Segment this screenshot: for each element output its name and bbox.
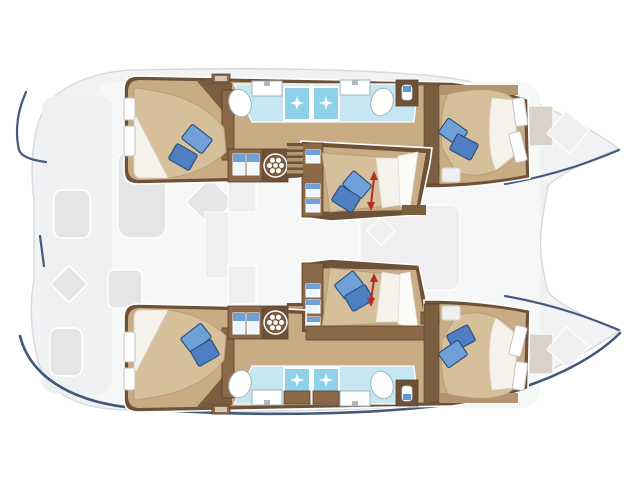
cockpit-bench-ghost (50, 328, 82, 376)
berth-steps (306, 284, 320, 330)
step-locker-top (306, 284, 320, 289)
floorplan-canvas (0, 0, 640, 480)
faucet (352, 80, 358, 85)
step-locker-top (306, 199, 320, 204)
bench (284, 391, 310, 404)
washer-icon (264, 311, 287, 334)
window-icon (124, 126, 135, 156)
washer-icon (264, 154, 287, 177)
catamaran-floorplan (0, 0, 640, 480)
cockpit-bench-ghost (54, 190, 90, 238)
step-locker-top (306, 300, 320, 305)
faucet (264, 81, 270, 86)
stairs-icon (287, 143, 303, 177)
window-icon (124, 368, 135, 390)
step-locker-top (306, 317, 320, 322)
faucet (264, 400, 270, 405)
locker-door-top (233, 154, 245, 162)
galley-counter-ghost (205, 212, 229, 278)
wardrobe (424, 304, 439, 402)
step-locker-top (306, 184, 320, 189)
locker-door-top (233, 313, 245, 321)
locker-door-top (247, 154, 259, 162)
window-icon (124, 98, 135, 120)
hatch-vent-inner (215, 407, 227, 412)
toilet-icon (402, 85, 412, 100)
hatch-vent-inner (215, 76, 227, 81)
seat (442, 168, 460, 182)
window-icon (124, 332, 135, 362)
seat (442, 306, 460, 320)
bathroom-port (225, 80, 418, 122)
bathroom-starboard (225, 366, 418, 406)
bow-hatch-ghost (527, 334, 553, 374)
bench (313, 391, 339, 404)
faucet (352, 401, 358, 406)
foot-step (402, 205, 426, 215)
locker-door-top (247, 313, 259, 321)
corridor-band (306, 326, 434, 340)
galley-unit-ghost (228, 266, 256, 304)
bow-hatch-ghost (527, 106, 553, 146)
toilet-icon (402, 386, 412, 401)
cockpit-bench-ghost (108, 270, 142, 308)
nacelle-cabin-forward (287, 141, 432, 221)
step-locker-top (306, 150, 320, 155)
